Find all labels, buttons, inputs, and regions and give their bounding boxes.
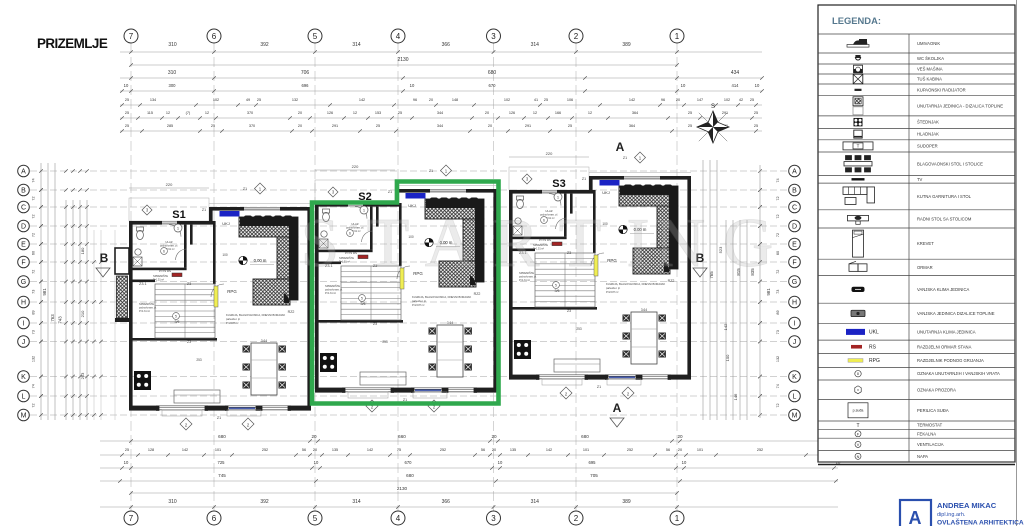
svg-text:126: 126 <box>327 111 333 115</box>
svg-text:OVLAŠTENA ARHITEKTICA: OVLAŠTENA ARHITEKTICA <box>937 518 1024 526</box>
svg-text:T: T <box>856 423 859 429</box>
svg-text:142: 142 <box>367 448 373 452</box>
svg-text:C: C <box>21 205 26 212</box>
svg-text:12: 12 <box>588 111 592 115</box>
svg-text:10: 10 <box>498 460 503 465</box>
svg-text:20: 20 <box>313 448 317 452</box>
svg-text:20: 20 <box>485 111 489 115</box>
svg-text:20: 20 <box>488 124 492 128</box>
svg-text:VANJSKA JEDINICA DIZALICE TOPL: VANJSKA JEDINICA DIZALICE TOPLINE <box>917 311 995 316</box>
svg-text:2: 2 <box>247 423 250 428</box>
svg-text:25: 25 <box>568 124 572 128</box>
svg-text:10: 10 <box>124 83 129 88</box>
svg-text:P=1.51 m²: P=1.51 m² <box>339 261 350 264</box>
svg-text:72: 72 <box>776 233 780 237</box>
svg-text:p.suđa: p.suđa <box>853 409 864 413</box>
svg-text:142: 142 <box>359 98 365 102</box>
svg-text:25: 25 <box>688 124 692 128</box>
svg-text:KUHINJA, BLAGOVAONICA, DNEVNI: KUHINJA, BLAGOVAONICA, DNEVNI BORAVAK <box>606 282 665 286</box>
svg-text:ANDREA MIKAC: ANDREA MIKAC <box>937 501 997 510</box>
svg-text:(7): (7) <box>186 111 191 115</box>
svg-text:12: 12 <box>166 111 170 115</box>
svg-text:135: 135 <box>332 448 338 452</box>
svg-text:20: 20 <box>298 124 302 128</box>
svg-text:NAPA: NAPA <box>917 454 928 459</box>
svg-text:366: 366 <box>442 42 451 48</box>
svg-text:SUDOPER: SUDOPER <box>917 143 938 148</box>
svg-text:300: 300 <box>169 83 177 88</box>
svg-text:P=79 RS: P=79 RS <box>345 251 357 255</box>
svg-text:705: 705 <box>590 473 598 478</box>
svg-text:745: 745 <box>218 473 226 478</box>
svg-text:20: 20 <box>491 434 497 439</box>
svg-text:1: 1 <box>675 514 680 523</box>
svg-text:0.00 m: 0.00 m <box>254 258 267 263</box>
svg-text:3: 3 <box>491 32 496 41</box>
svg-text:RAZDJELNI ORMAR STANA: RAZDJELNI ORMAR STANA <box>917 344 972 349</box>
svg-text:166: 166 <box>555 111 561 115</box>
svg-text:220: 220 <box>166 182 173 187</box>
svg-text:20: 20 <box>676 98 680 102</box>
svg-text:695: 695 <box>589 460 597 465</box>
svg-text:T: T <box>367 205 410 282</box>
svg-text:60: 60 <box>32 251 36 255</box>
svg-text:I: I <box>626 205 649 282</box>
svg-text:D: D <box>21 224 26 231</box>
svg-text:Z1: Z1 <box>597 385 601 389</box>
svg-text:K: K <box>21 374 26 381</box>
svg-text:765: 765 <box>709 271 714 279</box>
svg-text:72: 72 <box>32 214 36 218</box>
svg-text:parket/ker. pl.: parket/ker. pl. <box>606 287 621 290</box>
svg-text:25: 25 <box>754 124 758 128</box>
svg-text:K: K <box>792 374 797 381</box>
svg-text:VEŠ MAŠINA: VEŠ MAŠINA <box>917 67 943 72</box>
svg-text:L: L <box>793 394 797 401</box>
svg-text:G: G <box>792 279 797 286</box>
svg-text:P=4.31 m²: P=4.31 m² <box>325 292 336 295</box>
svg-text:132: 132 <box>292 98 298 102</box>
svg-text:20: 20 <box>298 111 302 115</box>
svg-text:PERILICA SUĐA: PERILICA SUĐA <box>917 408 949 413</box>
svg-text:5: 5 <box>313 514 318 523</box>
svg-text:OZNAKA PROZORA: OZNAKA PROZORA <box>917 387 956 392</box>
svg-text:x: x <box>857 388 859 392</box>
svg-text:Z1: Z1 <box>623 156 627 160</box>
svg-text:P=23.87 m²: P=23.87 m² <box>412 304 425 307</box>
svg-text:2: 2 <box>574 32 579 41</box>
svg-text:370: 370 <box>249 124 255 128</box>
svg-text:680: 680 <box>581 434 589 439</box>
svg-text:RPG: RPG <box>869 358 880 364</box>
svg-text:T: T <box>559 205 602 282</box>
svg-text:252: 252 <box>262 448 268 452</box>
svg-text:P=79 RS: P=79 RS <box>539 238 551 242</box>
svg-text:S3: S3 <box>552 178 565 190</box>
svg-text:132: 132 <box>776 356 780 362</box>
svg-text:HLADNJAK: HLADNJAK <box>917 132 939 137</box>
svg-text:25: 25 <box>211 124 215 128</box>
svg-text:132: 132 <box>32 356 36 362</box>
svg-text:4: 4 <box>396 514 401 523</box>
svg-text:KUHINJA, BLAGOVAONICA, DNEVNI: KUHINJA, BLAGOVAONICA, DNEVNI BORAVAK <box>412 295 471 299</box>
svg-text:314: 314 <box>531 499 540 505</box>
svg-text:56: 56 <box>666 448 670 452</box>
svg-text:KREVET: KREVET <box>917 241 934 246</box>
svg-text:dipl.ing.arh.: dipl.ing.arh. <box>937 512 966 518</box>
svg-text:5: 5 <box>313 32 318 41</box>
svg-text:291: 291 <box>332 124 338 128</box>
svg-text:660: 660 <box>398 434 406 439</box>
svg-text:3: 3 <box>491 514 496 523</box>
svg-text:981: 981 <box>42 288 47 296</box>
svg-text:134: 134 <box>150 98 156 102</box>
svg-text:680: 680 <box>488 70 497 76</box>
svg-text:20: 20 <box>677 434 683 439</box>
svg-text:6: 6 <box>543 218 545 222</box>
svg-text:ULAZ: ULAZ <box>545 209 552 213</box>
svg-text:VENTILACIJA: VENTILACIJA <box>917 442 944 447</box>
svg-text:3.64: 3.64 <box>641 308 647 312</box>
svg-text:680: 680 <box>218 434 226 439</box>
svg-text:135: 135 <box>510 448 516 452</box>
svg-text:73: 73 <box>32 330 36 334</box>
svg-text:10: 10 <box>410 83 415 88</box>
svg-text:72: 72 <box>32 270 36 274</box>
svg-text:147: 147 <box>697 98 703 102</box>
svg-text:210: 210 <box>80 310 85 317</box>
svg-text:20: 20 <box>492 448 496 452</box>
svg-text:ULAZ: ULAZ <box>351 222 358 226</box>
svg-text:252: 252 <box>440 448 446 452</box>
svg-text:parket/ker. pl.: parket/ker. pl. <box>226 318 241 321</box>
svg-text:101: 101 <box>697 448 703 452</box>
svg-text:285: 285 <box>167 124 173 128</box>
svg-text:20: 20 <box>678 448 682 452</box>
svg-text:F: F <box>21 260 25 267</box>
svg-text:RZ2: RZ2 <box>474 292 481 296</box>
svg-text:101: 101 <box>215 448 221 452</box>
svg-text:ULAZ: ULAZ <box>165 240 172 244</box>
svg-text:102: 102 <box>213 98 219 102</box>
svg-text:12: 12 <box>533 111 537 115</box>
svg-text:RZ2: RZ2 <box>288 310 295 314</box>
svg-text:2: 2 <box>574 514 579 523</box>
svg-text:G: G <box>21 279 26 286</box>
svg-text:M: M <box>21 413 27 420</box>
svg-text:A: A <box>792 169 797 176</box>
svg-text:I: I <box>794 321 796 328</box>
svg-text:3/6: 3/6 <box>555 289 560 293</box>
svg-text:74: 74 <box>776 384 780 388</box>
svg-text:B: B <box>21 188 26 195</box>
svg-text:56: 56 <box>481 448 485 452</box>
svg-text:10: 10 <box>681 83 686 88</box>
svg-text:2: 2 <box>565 392 568 397</box>
svg-text:M: M <box>792 413 798 420</box>
svg-text:392: 392 <box>260 42 269 48</box>
svg-text:S1: S1 <box>172 209 185 221</box>
svg-text:73: 73 <box>776 330 780 334</box>
svg-text:253: 253 <box>196 358 202 362</box>
svg-text:D: D <box>792 224 797 231</box>
svg-text:75: 75 <box>397 448 401 452</box>
svg-text:72: 72 <box>776 270 780 274</box>
svg-text:3/6: 3/6 <box>361 302 366 306</box>
svg-text:106: 106 <box>567 98 573 102</box>
svg-text:115: 115 <box>147 111 153 115</box>
svg-text:142: 142 <box>629 98 635 102</box>
svg-text:Z3: Z3 <box>187 282 191 286</box>
svg-text:743: 743 <box>58 316 63 324</box>
svg-text:7: 7 <box>129 514 134 523</box>
svg-text:72: 72 <box>32 196 36 200</box>
svg-text:B: B <box>100 251 109 265</box>
svg-text:UNUTARNJA KLIMA JEDINICA: UNUTARNJA KLIMA JEDINICA <box>917 329 976 334</box>
svg-text:UNUTARNJA JEDINICA - DIZALICA: UNUTARNJA JEDINICA - DIZALICA TOPLINE <box>917 103 1003 108</box>
svg-text:E: E <box>21 242 26 249</box>
svg-text:KUHINJA, BLAGOVAONICA, DNEVNI: KUHINJA, BLAGOVAONICA, DNEVNI BORAVAK <box>226 313 285 317</box>
svg-text:F: F <box>792 260 796 267</box>
svg-text:696: 696 <box>302 83 310 88</box>
svg-text:60: 60 <box>776 251 780 255</box>
svg-text:142: 142 <box>723 323 728 330</box>
svg-text:2: 2 <box>627 392 630 397</box>
svg-text:J: J <box>793 339 797 346</box>
svg-text:L: L <box>22 394 26 401</box>
svg-text:Z3: Z3 <box>567 309 571 313</box>
svg-text:25: 25 <box>125 111 129 115</box>
svg-text:A: A <box>425 205 476 282</box>
svg-text:25: 25 <box>125 448 129 452</box>
svg-text:4: 4 <box>396 32 401 41</box>
svg-text:Z1: Z1 <box>429 169 433 173</box>
svg-text:252: 252 <box>757 448 763 452</box>
svg-text:72: 72 <box>776 403 780 407</box>
svg-text:72: 72 <box>32 403 36 407</box>
svg-text:5: 5 <box>175 314 177 318</box>
svg-text:Z1: Z1 <box>582 177 586 181</box>
svg-text:RPG: RPG <box>227 289 237 294</box>
svg-text:6: 6 <box>349 231 351 235</box>
svg-text:6: 6 <box>212 514 217 523</box>
svg-text:981: 981 <box>766 288 771 296</box>
svg-text:670: 670 <box>405 460 413 465</box>
svg-text:RPG: RPG <box>607 258 617 263</box>
svg-text:310: 310 <box>168 499 177 505</box>
svg-text:UMIVAONIK: UMIVAONIK <box>917 41 940 46</box>
svg-text:392: 392 <box>260 499 269 505</box>
svg-text:310: 310 <box>168 70 177 76</box>
svg-text:89: 89 <box>32 310 36 314</box>
svg-text:2: 2 <box>185 423 188 428</box>
svg-text:42: 42 <box>739 98 743 102</box>
svg-text:72: 72 <box>776 196 780 200</box>
svg-text:314: 314 <box>531 42 540 48</box>
svg-text:S: S <box>301 205 340 282</box>
svg-text:74: 74 <box>32 178 36 182</box>
svg-text:25: 25 <box>544 98 548 102</box>
svg-text:252: 252 <box>627 448 633 452</box>
svg-text:364: 364 <box>632 111 638 115</box>
svg-text:P=23.87 m²: P=23.87 m² <box>226 322 239 325</box>
svg-text:A: A <box>616 140 625 154</box>
svg-text:TV: TV <box>917 177 923 182</box>
svg-text:12: 12 <box>205 111 209 115</box>
svg-text:TERMOSTAT: TERMOSTAT <box>917 423 943 428</box>
svg-text:H: H <box>792 300 797 307</box>
svg-text:25: 25 <box>398 111 402 115</box>
svg-text:253: 253 <box>382 340 388 344</box>
svg-text:100: 100 <box>602 222 608 226</box>
svg-text:10: 10 <box>124 460 129 465</box>
svg-text:142: 142 <box>182 448 188 452</box>
svg-text:389: 389 <box>622 499 631 505</box>
svg-text:366: 366 <box>442 499 451 505</box>
svg-text:220: 220 <box>352 164 359 169</box>
svg-text:parket/ker. pl.: parket/ker. pl. <box>412 300 427 303</box>
svg-text:Z1: Z1 <box>243 187 247 191</box>
svg-text:25: 25 <box>125 98 129 102</box>
svg-text:72: 72 <box>776 214 780 218</box>
svg-text:12: 12 <box>353 111 357 115</box>
svg-text:ORMAR: ORMAR <box>917 265 933 270</box>
svg-text:FEKALNA: FEKALNA <box>917 431 936 436</box>
svg-text:RPG: RPG <box>413 271 423 276</box>
svg-text:25: 25 <box>257 98 261 102</box>
svg-text:414: 414 <box>732 83 740 88</box>
svg-text:128: 128 <box>148 448 154 452</box>
svg-text:2130: 2130 <box>397 57 408 63</box>
svg-text:73: 73 <box>32 290 36 294</box>
svg-text:102: 102 <box>504 98 510 102</box>
svg-text:8: 8 <box>857 372 859 376</box>
svg-text:3.64: 3.64 <box>447 321 453 325</box>
svg-text:344: 344 <box>437 124 443 128</box>
svg-text:WC ŠKOLJKA: WC ŠKOLJKA <box>917 56 944 61</box>
svg-text:25: 25 <box>688 111 692 115</box>
svg-text:74: 74 <box>32 384 36 388</box>
svg-text:J: J <box>22 339 26 346</box>
svg-text:PRIZEMLJE: PRIZEMLJE <box>37 36 108 51</box>
svg-text:725: 725 <box>218 460 226 465</box>
svg-text:314: 314 <box>352 42 361 48</box>
svg-text:E: E <box>792 242 797 249</box>
svg-text:P=4.31 m²: P=4.31 m² <box>139 310 150 313</box>
svg-text:N: N <box>857 455 860 459</box>
svg-text:A: A <box>613 401 622 415</box>
svg-text:N: N <box>655 205 706 282</box>
svg-text:434: 434 <box>731 70 740 76</box>
svg-text:89: 89 <box>776 310 780 314</box>
svg-text:364: 364 <box>629 124 635 128</box>
svg-text:126: 126 <box>509 111 515 115</box>
svg-text:3/6: 3/6 <box>175 320 180 324</box>
svg-text:6: 6 <box>212 32 217 41</box>
svg-text:10: 10 <box>314 460 319 465</box>
svg-text:5: 5 <box>361 296 363 300</box>
svg-text:RAZDJELNIK PODNOG GRIJANJA: RAZDJELNIK PODNOG GRIJANJA <box>917 358 984 363</box>
svg-text:3.64: 3.64 <box>261 339 267 343</box>
svg-text:72: 72 <box>32 233 36 237</box>
svg-text:25: 25 <box>376 124 380 128</box>
svg-text:A: A <box>909 508 922 526</box>
svg-text:680: 680 <box>406 473 414 478</box>
svg-text:2130: 2130 <box>397 486 408 491</box>
svg-text:UKL: UKL <box>869 330 879 336</box>
svg-text:P=1.51 m²: P=1.51 m² <box>153 279 164 282</box>
svg-text:7: 7 <box>129 32 134 41</box>
svg-text:I: I <box>23 321 25 328</box>
svg-text:96: 96 <box>661 98 665 102</box>
svg-text:96: 96 <box>413 98 417 102</box>
svg-text:25: 25 <box>754 111 758 115</box>
svg-text:C: C <box>792 205 797 212</box>
svg-text:142: 142 <box>546 448 552 452</box>
svg-text:RS: RS <box>869 345 877 351</box>
svg-text:P=79 RS: P=79 RS <box>159 269 171 273</box>
svg-text:25: 25 <box>125 124 129 128</box>
svg-text:310: 310 <box>168 42 177 48</box>
svg-text:Z3.1: Z3.1 <box>139 282 147 286</box>
svg-text:102: 102 <box>724 98 730 102</box>
svg-text:OZNAKA UNUTARNJIH I VANJSKIH V: OZNAKA UNUTARNJIH I VANJSKIH VRATA <box>917 371 1000 376</box>
svg-text:20: 20 <box>311 434 317 439</box>
svg-text:370: 370 <box>247 111 253 115</box>
svg-text:153: 153 <box>375 111 381 115</box>
svg-text:10: 10 <box>682 460 687 465</box>
svg-text:101: 101 <box>583 448 589 452</box>
svg-text:UKJ: UKJ <box>222 221 230 226</box>
svg-text:706: 706 <box>301 70 310 76</box>
svg-text:41: 41 <box>534 98 538 102</box>
svg-text:KUTNA GARNITURA I STOL: KUTNA GARNITURA I STOL <box>917 194 972 199</box>
svg-text:1: 1 <box>675 32 680 41</box>
svg-text:100: 100 <box>222 253 228 257</box>
svg-text:100: 100 <box>725 354 730 361</box>
svg-text:6: 6 <box>163 249 165 253</box>
svg-text:20: 20 <box>429 98 433 102</box>
svg-text:Z3: Z3 <box>187 340 191 344</box>
svg-text:P=23.87 m²: P=23.87 m² <box>606 291 619 294</box>
svg-text:G: G <box>723 205 774 282</box>
svg-text:BLAGOVAONSKI STOL I STOLICE: BLAGOVAONSKI STOL I STOLICE <box>917 161 983 166</box>
svg-text:56: 56 <box>302 448 306 452</box>
svg-text:73: 73 <box>776 290 780 294</box>
svg-text:RADNI STOL SA STOLICOM: RADNI STOL SA STOLICOM <box>917 216 972 221</box>
svg-text:253: 253 <box>576 327 582 331</box>
svg-text:Z1: Z1 <box>388 190 392 194</box>
svg-text:S: S <box>711 104 715 110</box>
svg-text:344: 344 <box>437 111 443 115</box>
svg-text:ŠTEDNJAK: ŠTEDNJAK <box>917 120 939 125</box>
svg-text:B: B <box>792 188 797 195</box>
svg-text:KUPAONSKI RADIJATOR: KUPAONSKI RADIJATOR <box>917 87 966 92</box>
svg-text:25: 25 <box>750 98 754 102</box>
svg-text:Z1: Z1 <box>217 416 221 420</box>
svg-text:VANJSKA KLIMA JEDINICA: VANJSKA KLIMA JEDINICA <box>917 287 969 292</box>
svg-text:UKJ: UKJ <box>602 190 610 195</box>
svg-text:670: 670 <box>489 83 497 88</box>
svg-text:LEGENDA:: LEGENDA: <box>832 15 881 26</box>
svg-text:Z3: Z3 <box>373 322 377 326</box>
svg-text:220: 220 <box>546 151 553 156</box>
svg-text:5: 5 <box>555 283 557 287</box>
svg-text:389: 389 <box>622 42 631 48</box>
svg-text:V: V <box>857 443 860 447</box>
svg-text:74: 74 <box>776 178 780 182</box>
svg-text:180: 180 <box>80 247 85 254</box>
